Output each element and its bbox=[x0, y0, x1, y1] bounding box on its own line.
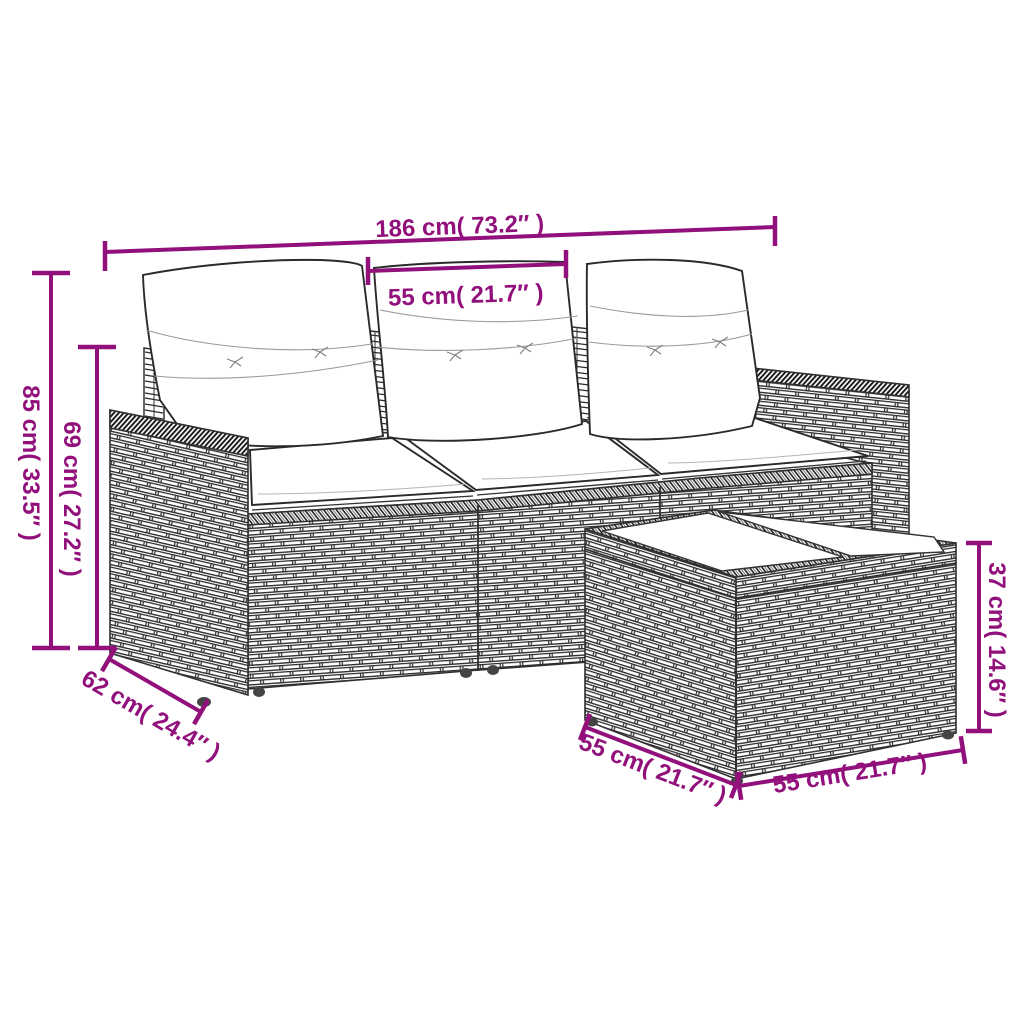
svg-text:37 cm( 14.6″ ): 37 cm( 14.6″ ) bbox=[983, 562, 1010, 718]
svg-text:55 cm( 21.7″ ): 55 cm( 21.7″ ) bbox=[388, 279, 544, 311]
svg-text:85 cm( 33.5″ ): 85 cm( 33.5″ ) bbox=[17, 385, 44, 541]
svg-text:69 cm( 27.2″ ): 69 cm( 27.2″ ) bbox=[58, 421, 85, 577]
